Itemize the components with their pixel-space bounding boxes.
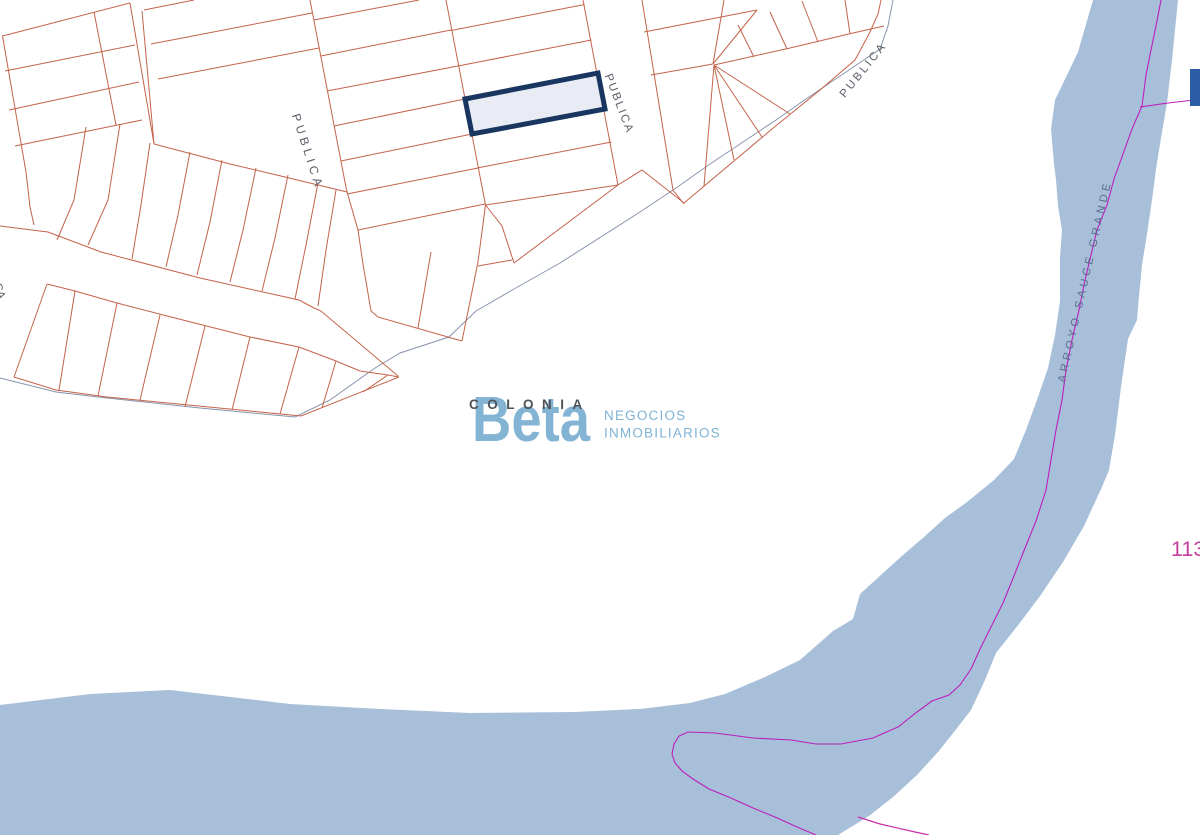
svg-text:Beta: Beta xyxy=(472,383,590,455)
svg-text:NEGOCIOS: NEGOCIOS xyxy=(604,408,686,423)
svg-text:INMOBILIARIOS: INMOBILIARIOS xyxy=(604,426,721,441)
svg-text:113: 113 xyxy=(1171,537,1200,561)
svg-text:COLONIA: COLONIA xyxy=(469,397,591,412)
